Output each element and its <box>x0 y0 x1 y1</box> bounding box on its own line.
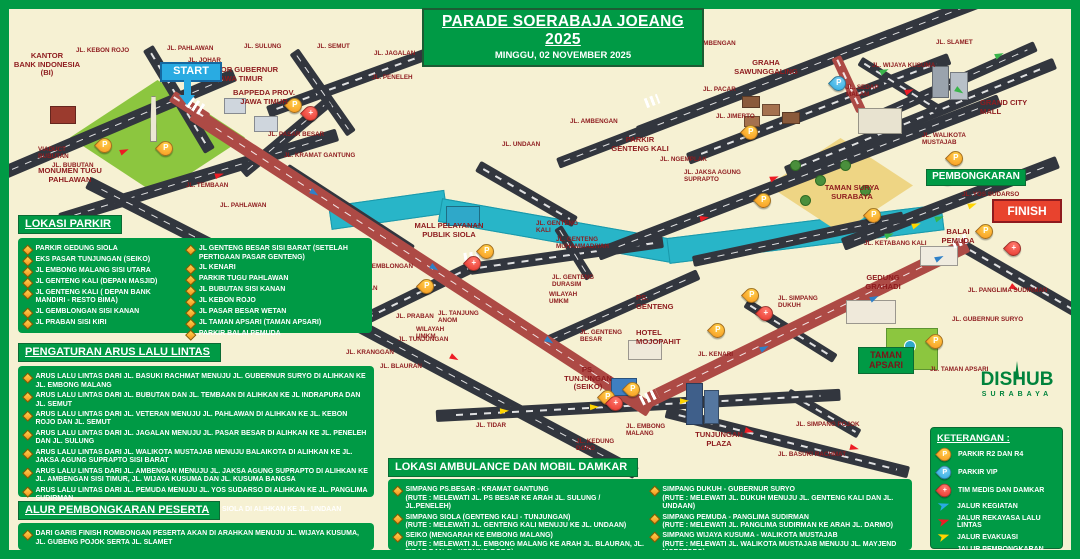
diamond-bullet-icon <box>186 286 197 297</box>
street-label: JL. KETABANG KALI <box>864 240 927 247</box>
diamond-bullet-icon <box>22 245 33 256</box>
legend-row: ➤JALUR KEGIATAN <box>937 501 1056 512</box>
legend-row: PPARKIR VIP <box>937 465 1056 480</box>
damkar-location: SIMPANG DUKUH - GUBERNUR SURYO <box>662 486 906 494</box>
list-item-text: JL TAMAN APSARI (TAMAN APSARI) <box>199 319 321 327</box>
diamond-bullet-icon <box>22 411 33 422</box>
parkir-item: PARKIR BALAI PEMUDA <box>187 330 366 339</box>
list-item-text: JL PRABAN SISI KIRI <box>36 319 107 327</box>
legend-label: PARKIR R2 DAN R4 <box>958 451 1023 458</box>
list-item-text: ARUS LALU LINTAS DARI JL. JAGALAN MENUJU… <box>36 430 369 447</box>
street-label: JL. KRAMAT GANTUNG <box>284 152 355 159</box>
parking-pin-icon: P <box>945 148 966 169</box>
parking-pin-icon: P <box>707 320 728 341</box>
diamond-bullet-icon <box>649 486 660 497</box>
list-item-text: JL EMBONG MALANG SISI UTARA <box>36 267 151 275</box>
parkir-list-col2: JL GENTENG BESAR SISI BARAT (SETELAH PER… <box>187 243 366 341</box>
parkir-list-col1: PARKIR GEDUNG SIOLAEKS PASAR TUNJUNGAN (… <box>24 243 181 341</box>
street-label: JL. BASUKI RACHMAT <box>778 451 846 458</box>
route-arrow-icon <box>680 398 689 404</box>
list-item-text: ARUS LALU LINTAS DARI JL. BUBUTAN DAN JL… <box>36 392 369 409</box>
landmark-label: MONUMEN TUGU PAHLAWAN <box>24 167 116 184</box>
parkir-panel-header: LOKASI PARKIR <box>18 215 122 234</box>
list-item-text: DARI GARIS FINISH ROMBONGAN PESERTA AKAN… <box>36 530 369 547</box>
diamond-bullet-icon <box>22 486 33 497</box>
list-item-text: JL GENTENG KALI (DEPAN MASJID) <box>36 278 158 286</box>
diamond-bullet-icon <box>392 486 403 497</box>
diamond-bullet-icon <box>186 275 197 286</box>
diamond-bullet-icon <box>649 532 660 543</box>
legend-row: PPARKIR R2 DAN R4 <box>937 447 1056 462</box>
diamond-bullet-icon <box>22 256 33 267</box>
list-item-text: ARUS LALU LINTAS DARI JL. VETERAN MENUJU… <box>36 411 369 428</box>
street-label: JL. SEMUT <box>317 43 350 50</box>
parkir-item: JL EMBONG MALANG SISI UTARA <box>24 267 181 276</box>
street-label: JL. PAHLAWAN <box>167 45 213 52</box>
landmark-label: PARKIR GENTENG KALI <box>600 136 680 153</box>
pin-orange-icon: P <box>935 445 954 464</box>
diamond-bullet-icon <box>392 513 403 524</box>
poster-title-box: PARADE SOERABAJA JOEANG 2025 MINGGU, 02 … <box>422 8 704 67</box>
ambulance-panel-header: LOKASI AMBULANCE DAN MOBIL DAMKAR <box>388 458 638 477</box>
list-item-text: JL GENTENG KALI ( DEPAN BANK MANDIRI - R… <box>36 289 182 306</box>
diamond-bullet-icon <box>186 307 197 318</box>
damkar-route: (RUTE : MELEWATI JL. PANGLIMA SUDIRMAN K… <box>662 522 893 530</box>
route-arrow-icon <box>500 408 509 414</box>
street-label: JL. TIDAR <box>476 422 506 429</box>
legend-row: ➤JALUR REKAYASA LALU LINTAS <box>937 515 1056 529</box>
list-item-text: ARUS LALU LINTAS DARI JL. WALIKOTA MUSTA… <box>36 449 369 466</box>
landmark-label: MALL PELAYANAN PUBLIK SIOLA <box>400 222 498 239</box>
legend-row: ➤JALUR EVAKUASI <box>937 532 1056 543</box>
street-label: JL. PANGLIMA SUDIRMAN <box>968 287 1047 294</box>
street-label: VIADUCT BUBUTAN <box>38 146 69 160</box>
ambulance-list-col2: SIMPANG DUKUH - GUBERNUR SURYO(RUTE : ME… <box>651 484 906 559</box>
arrow-blue-icon: ➤ <box>934 499 954 515</box>
arus-item: ARUS LALU LINTAS DARI JL. BUBUTAN DAN JL… <box>24 392 368 409</box>
street-label: JL. TANJUNG ANOM <box>438 310 479 324</box>
street-label: JL. GENTENG DURASIM <box>552 274 594 288</box>
list-item-text: JL BUBUTAN SISI KANAN <box>199 286 285 294</box>
list-item-text: EKS PASAR TUNJUNGAN (SEIKO) <box>36 256 151 264</box>
ambulance-item: SIMPANG PEMUDA - PANGLIMA SUDIRMAN(RUTE … <box>651 514 906 531</box>
legend-label: PARKIR VIP <box>958 469 998 476</box>
start-arrowhead-icon <box>179 95 195 113</box>
parkir-item: PARKIR GEDUNG SIOLA <box>24 245 181 254</box>
street-label: JL. PASAR BESAR <box>268 131 324 138</box>
legend-label: JALUR EVAKUASI <box>957 534 1018 541</box>
diamond-bullet-icon <box>22 448 33 459</box>
street-label: JL. UNDAAN <box>502 141 540 148</box>
damkar-location: SIMPANG PS.BESAR - KRAMAT GANTUNG <box>406 486 645 494</box>
tree-icon <box>790 160 801 171</box>
building <box>686 383 703 425</box>
diamond-bullet-icon <box>22 373 33 384</box>
building <box>50 106 76 124</box>
street-label: JL. JAGALAN <box>374 50 415 57</box>
building <box>782 112 800 124</box>
arus-item: ARUS LALU LINTAS DARI JL. BASUKI RACHMAT… <box>24 373 368 390</box>
ambulance-item: SIMPANG SIOLA (GENTENG KALI - TUNJUNGAN)… <box>394 514 645 531</box>
route-arrow-icon <box>214 171 224 179</box>
landmark-label: PS. GENTENG <box>636 294 686 311</box>
street-label: JL. WALIKOTA MUSTAJAB <box>922 132 966 146</box>
diamond-bullet-icon <box>22 288 33 299</box>
diamond-bullet-icon <box>22 467 33 478</box>
diamond-bullet-icon <box>186 318 197 329</box>
street-label: JL. SIMPANG DUKUH <box>778 295 818 309</box>
street-label: JL. JAKSA AGUNG SUPRAPTO <box>684 169 741 183</box>
legend-header: KETERANGAN : <box>937 433 1056 444</box>
street-label: JL. SEDAP MALAM <box>846 84 879 98</box>
pembongkaran-marker: PEMBONGKARAN <box>926 169 1026 186</box>
street-label: JL. GENTENG MUHAMMADIYAH <box>556 236 609 250</box>
parkir-item: JL TAMAN APSARI (TAMAN APSARI) <box>187 319 366 328</box>
street-label: JL. SLAMET <box>936 39 973 46</box>
list-item-text: JL KENARI <box>199 264 236 272</box>
legend-label: JALUR REKAYASA LALU LINTAS <box>957 515 1056 529</box>
diamond-bullet-icon <box>22 307 33 318</box>
parkir-item: JL KEBON ROJO <box>187 297 366 306</box>
street-label: JL. TUNJUNGAN <box>398 336 448 343</box>
list-item-text: JL KEBON ROJO <box>199 297 256 305</box>
list-item-text: PARKIR TUGU PAHLAWAN <box>199 275 289 283</box>
route-arrow-icon <box>967 201 978 210</box>
diamond-bullet-icon <box>649 513 660 524</box>
arrow-red-icon: ➤ <box>934 514 954 530</box>
start-marker: START <box>160 62 222 82</box>
street-label: JL. JIMERTO <box>716 113 755 120</box>
landmark-label: KANTOR BANK INDONESIA (BI) <box>8 52 86 78</box>
damkar-route: (RUTE : MELEWATI JL. PS BESAR KE ARAH JL… <box>406 495 645 512</box>
list-item-text: ARUS LALU LINTAS DARI JL. BASUKI RACHMAT… <box>36 373 369 390</box>
street-label: JL. WIJAYA KUSUMA <box>872 62 935 69</box>
street-label: JL. PRABAN <box>396 313 434 320</box>
damkar-location: SIMPANG SIOLA (GENTENG KALI - TUNJUNGAN) <box>406 514 627 522</box>
building <box>846 300 896 324</box>
arrow-green-icon: ➤ <box>934 545 954 559</box>
legend-items: PPARKIR R2 DAN R4PPARKIR VIP+TIM MEDIS D… <box>937 447 1056 559</box>
building <box>932 66 949 98</box>
landmark-label: HOTEL MOJOPAHIT <box>636 329 696 346</box>
ambulance-panel: SIMPANG PS.BESAR - KRAMAT GANTUNG(RUTE :… <box>388 479 912 550</box>
street-label: JL. KEDUNG DORO <box>576 438 614 452</box>
poster-date: MINGGU, 02 NOVEMBER 2025 <box>424 50 702 61</box>
arus-item: ARUS LALU LINTAS DARI JL. AMBENGAN MENUJ… <box>24 468 368 485</box>
diamond-bullet-icon <box>22 278 33 289</box>
landmark-label: GRAHA SAWUNGGALING <box>722 59 810 76</box>
building <box>950 72 968 100</box>
diamond-bullet-icon <box>392 532 403 543</box>
parking-pin-icon: P <box>741 285 762 306</box>
damkar-route: (RUTE : MELEWATI JL. EMBONG MALANG KE AR… <box>406 541 645 558</box>
diamond-bullet-icon <box>186 296 197 307</box>
taman-apsari-label-box: TAMAN APSARI <box>858 347 914 374</box>
parkir-panel: PARKIR GEDUNG SIOLAEKS PASAR TUNJUNGAN (… <box>18 238 372 333</box>
building <box>742 96 760 108</box>
route-arrow-icon <box>449 353 460 363</box>
parkir-item: JL PASAR BESAR WETAN <box>187 308 366 317</box>
pin-red-icon: + <box>935 481 954 500</box>
parkir-item: JL GEMBLONGAN SISI KANAN <box>24 308 181 317</box>
route-arrow-icon <box>699 214 709 222</box>
landmark-label: GRAND CITY MALL <box>980 99 1050 116</box>
street-label: JL. GENTENG BESAR <box>580 329 622 343</box>
street-label: JL. SULUNG <box>244 43 281 50</box>
tree-icon <box>800 195 811 206</box>
landmark-label: TUNJUNGAN PLAZA <box>684 431 754 448</box>
parkir-item: JL GENTENG KALI (DEPAN MASJID) <box>24 278 181 287</box>
street-label: JL. TEMBAAN <box>186 182 228 189</box>
legend-panel: KETERANGAN : PPARKIR R2 DAN R4PPARKIR VI… <box>930 427 1063 549</box>
list-item-text: JL GEMBLONGAN SISI KANAN <box>36 308 140 316</box>
parkir-item: JL GENTENG KALI ( DEPAN BANK MANDIRI - R… <box>24 289 181 306</box>
parade-route-poster: JL. KEBON ROJOJL. PAHLAWANJL. JOHARJL. S… <box>0 0 1080 559</box>
landmark-label: BAPPEDA PROV. JAWA TIMUR <box>226 89 302 106</box>
dishub-surabaya-logo: DISHUB SURABAYA <box>962 370 1072 398</box>
arus-panel: ARUS LALU LINTAS DARI JL. BASUKI RACHMAT… <box>18 366 374 497</box>
damkar-location: SEIKO (MENGARAH KE EMBONG MALANG) <box>406 532 645 540</box>
landmark-label: BALAI PEMUDA <box>930 228 986 245</box>
alur-panel-header: ALUR PEMBONGKARAN PESERTA <box>18 501 220 520</box>
damkar-route: (RUTE : MELEWATI JL. GENTENG KALI MENUJU… <box>406 522 627 530</box>
medic-pin-icon: + <box>1003 238 1024 259</box>
crosswalk <box>644 94 661 108</box>
ambulance-item: SIMPANG DUKUH - GUBERNUR SURYO(RUTE : ME… <box>651 486 906 511</box>
landmark-label: TAMAN SURYA SURABAYA <box>812 184 892 201</box>
route-arrow-icon <box>884 231 895 240</box>
route-arrow-icon <box>590 404 599 410</box>
building <box>704 390 719 424</box>
arus-item: ARUS LALU LINTAS DARI JL. WALIKOTA MUSTA… <box>24 449 368 466</box>
street-label: JL. PACAR <box>703 86 736 93</box>
street-label: JL. GUBERNUR SURYO <box>952 316 1023 323</box>
alur-item: DARI GARIS FINISH ROMBONGAN PESERTA AKAN… <box>24 530 368 547</box>
arus-item: ARUS LALU LINTAS DARI JL. JAGALAN MENUJU… <box>24 430 368 447</box>
list-item-text: PARKIR BALAI PEMUDA <box>199 330 281 338</box>
street-label: JL. YOS SUDARSO <box>962 191 1019 198</box>
street-label: JL. GENTENG KALI <box>536 220 578 234</box>
list-item-text: JL PASAR BESAR WETAN <box>199 308 287 316</box>
poster-title: PARADE SOERABAJA JOEANG 2025 <box>424 13 702 49</box>
arus-item: ARUS LALU LINTAS DARI JL. VETERAN MENUJU… <box>24 411 368 428</box>
street-label: JL. AMBENGAN <box>570 118 618 125</box>
street-label: JL. KENARI <box>698 351 733 358</box>
parkir-item: JL PRABAN SISI KIRI <box>24 319 181 328</box>
legend-label: JALUR PEMBONGKARAN PESERTA <box>957 546 1056 559</box>
street-label: JL. NGEMPLAK <box>660 156 707 163</box>
street-label: JL. PAHLAWAN <box>220 202 266 209</box>
alur-panel: DARI GARIS FINISH ROMBONGAN PESERTA AKAN… <box>18 523 374 550</box>
arrow-yellow-icon: ➤ <box>934 530 954 546</box>
damkar-route: (RUTE : MELEWATI JL. WALIKOTA MUSTAJAB M… <box>662 541 906 558</box>
finish-marker: FINISH <box>992 199 1062 223</box>
ambulance-item: SIMPANG WIJAYA KUSUMA - WALIKOTA MUSTAJA… <box>651 532 906 557</box>
ambulance-item: SIMPANG PS.BESAR - KRAMAT GANTUNG(RUTE :… <box>394 486 645 511</box>
legend-label: JALUR KEGIATAN <box>957 503 1018 510</box>
list-item-text: PARKIR GEDUNG SIOLA <box>36 245 118 253</box>
parkir-item: JL KENARI <box>187 264 366 273</box>
diamond-bullet-icon <box>186 264 197 275</box>
list-item-text: ARUS LALU LINTAS DARI JL. AMBENGAN MENUJ… <box>36 468 369 485</box>
logo-city: SURABAYA <box>962 391 1072 398</box>
landmark-label: PS. TUNJUNGAN (SEIKO) <box>556 366 620 392</box>
list-item-text: JL GENTENG BESAR SISI BARAT (SETELAH PER… <box>199 245 366 262</box>
parkir-item: EKS PASAR TUNJUNGAN (SEIKO) <box>24 256 181 265</box>
ambulance-list-col1: SIMPANG PS.BESAR - KRAMAT GANTUNG(RUTE :… <box>394 484 645 559</box>
diamond-bullet-icon <box>22 392 33 403</box>
building <box>254 116 278 132</box>
legend-row: ➤JALUR PEMBONGKARAN PESERTA <box>937 546 1056 559</box>
diamond-bullet-icon <box>22 267 33 278</box>
street-label: JL. KRANGGAN <box>346 349 394 356</box>
parkir-item: JL GENTENG BESAR SISI BARAT (SETELAH PER… <box>187 245 366 262</box>
start-arrow-icon <box>184 79 191 96</box>
tree-icon <box>840 160 851 171</box>
arus-panel-header: PENGATURAN ARUS LALU LINTAS <box>18 343 221 362</box>
parkir-item: JL BUBUTAN SISI KANAN <box>187 286 366 295</box>
street-label: JL. EMBONG MALANG <box>626 423 665 437</box>
damkar-location: SIMPANG PEMUDA - PANGLIMA SUDIRMAN <box>662 514 893 522</box>
street-label: JL. PENELEH <box>372 74 413 81</box>
parkir-item: PARKIR TUGU PAHLAWAN <box>187 275 366 284</box>
diamond-bullet-icon <box>186 245 197 256</box>
landmark-label: GEDUNG GRAHADI <box>852 274 914 291</box>
damkar-location: SIMPANG WIJAYA KUSUMA - WALIKOTA MUSTAJA… <box>662 532 906 540</box>
street-label: JL. SIMPANG POJOK <box>796 421 860 428</box>
street-label: JL. BLAURAN <box>380 363 422 370</box>
building <box>762 104 780 116</box>
diamond-bullet-icon <box>22 318 33 329</box>
damkar-route: (RUTE : MELEWATI JL. DUKUH MENUJU JL. GE… <box>662 495 906 512</box>
legend-label: TIM MEDIS DAN DAMKAR <box>958 487 1044 494</box>
route-arrow-icon <box>849 444 859 452</box>
diamond-bullet-icon <box>186 329 197 340</box>
diamond-bullet-icon <box>22 530 33 541</box>
pin-blue-icon: P <box>935 463 954 482</box>
street-label: WILAYAH UMKM <box>549 291 577 305</box>
ambulance-item: SEIKO (MENGARAH KE EMBONG MALANG)(RUTE :… <box>394 532 645 557</box>
building <box>858 108 902 134</box>
diamond-bullet-icon <box>22 430 33 441</box>
legend-row: +TIM MEDIS DAN DAMKAR <box>937 483 1056 498</box>
